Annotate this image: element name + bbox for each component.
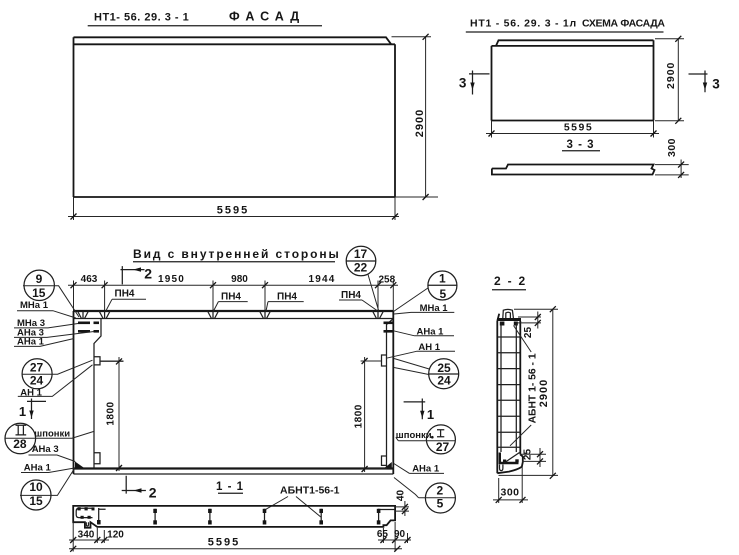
svg-text:27: 27 (436, 440, 450, 454)
svg-text:25: 25 (437, 361, 451, 375)
svg-text:2: 2 (149, 485, 157, 501)
svg-text:340: 340 (78, 530, 95, 541)
svg-text:ПН4: ПН4 (115, 289, 135, 300)
svg-text:НТ1 - 56. 29. 3 - 1л: НТ1 - 56. 29. 3 - 1л (470, 18, 577, 30)
svg-text:5595: 5595 (217, 205, 249, 217)
svg-text:15: 15 (29, 494, 43, 508)
svg-text:1944: 1944 (308, 274, 335, 285)
svg-text:25: 25 (523, 327, 534, 339)
svg-text:2: 2 (144, 266, 152, 282)
svg-text:25: 25 (523, 449, 534, 461)
svg-text:ПН4: ПН4 (221, 292, 241, 303)
svg-text:5595: 5595 (564, 122, 593, 134)
svg-text:1: 1 (19, 404, 26, 419)
svg-text:300: 300 (666, 138, 678, 157)
svg-text:65: 65 (377, 529, 389, 540)
svg-text:27: 27 (30, 361, 44, 375)
svg-text:Вид с внутренней стороны: Вид с внутренней стороны (133, 247, 341, 261)
svg-text:5: 5 (437, 497, 444, 511)
svg-text:1950: 1950 (158, 274, 185, 285)
svg-text:1800: 1800 (353, 404, 364, 428)
svg-text:1 - 1: 1 - 1 (216, 481, 244, 493)
svg-text:5: 5 (439, 287, 446, 301)
svg-text:10: 10 (29, 480, 43, 494)
svg-text:90: 90 (394, 529, 406, 540)
svg-text:15: 15 (32, 286, 46, 300)
svg-text:17: 17 (354, 247, 368, 261)
svg-text:980: 980 (231, 274, 248, 285)
svg-text:АН 1: АН 1 (20, 387, 42, 398)
svg-text:ПН4: ПН4 (277, 292, 297, 303)
svg-text:2900: 2900 (538, 379, 550, 407)
svg-text:2900: 2900 (665, 62, 677, 89)
svg-text:3 - 3: 3 - 3 (566, 139, 594, 151)
svg-text:АНа 1: АНа 1 (24, 463, 52, 474)
svg-text:1800: 1800 (106, 401, 117, 425)
svg-text:ПН4: ПН4 (341, 290, 361, 301)
svg-text:НТ1- 56. 29. 3 - 1: НТ1- 56. 29. 3 - 1 (94, 12, 189, 24)
svg-text:АБНТ 1- 56 - 1: АБНТ 1- 56 - 1 (527, 353, 538, 423)
svg-text:28: 28 (13, 437, 27, 451)
svg-text:2900: 2900 (414, 109, 426, 137)
svg-text:2 - 2: 2 - 2 (494, 274, 527, 288)
svg-text:АНа 1: АНа 1 (412, 464, 440, 475)
svg-text:9: 9 (36, 272, 43, 286)
svg-text:шпонки: шпонки (34, 428, 70, 439)
svg-text:463: 463 (81, 274, 98, 285)
svg-text:3: 3 (712, 77, 720, 92)
svg-text:24: 24 (437, 374, 451, 388)
svg-text:ФАСАД: ФАСАД (229, 10, 305, 24)
svg-text:МНа 1: МНа 1 (20, 300, 49, 311)
svg-text:5595: 5595 (208, 537, 240, 549)
svg-text:120: 120 (107, 530, 124, 541)
svg-text:АБНТ1-56-1: АБНТ1-56-1 (280, 485, 340, 497)
svg-text:24: 24 (30, 374, 44, 388)
svg-text:300: 300 (500, 487, 519, 499)
svg-text:40: 40 (395, 490, 406, 502)
svg-text:2: 2 (436, 484, 443, 498)
svg-text:шпонки: шпонки (396, 430, 432, 441)
svg-text:1: 1 (427, 407, 434, 422)
svg-text:3: 3 (459, 76, 467, 91)
svg-text:СХЕМА ФАСАДА: СХЕМА ФАСАДА (582, 18, 665, 30)
svg-text:258: 258 (378, 274, 395, 285)
svg-text:22: 22 (354, 261, 368, 275)
svg-text:1: 1 (439, 272, 446, 286)
svg-text:АНа 3: АНа 3 (32, 444, 59, 455)
